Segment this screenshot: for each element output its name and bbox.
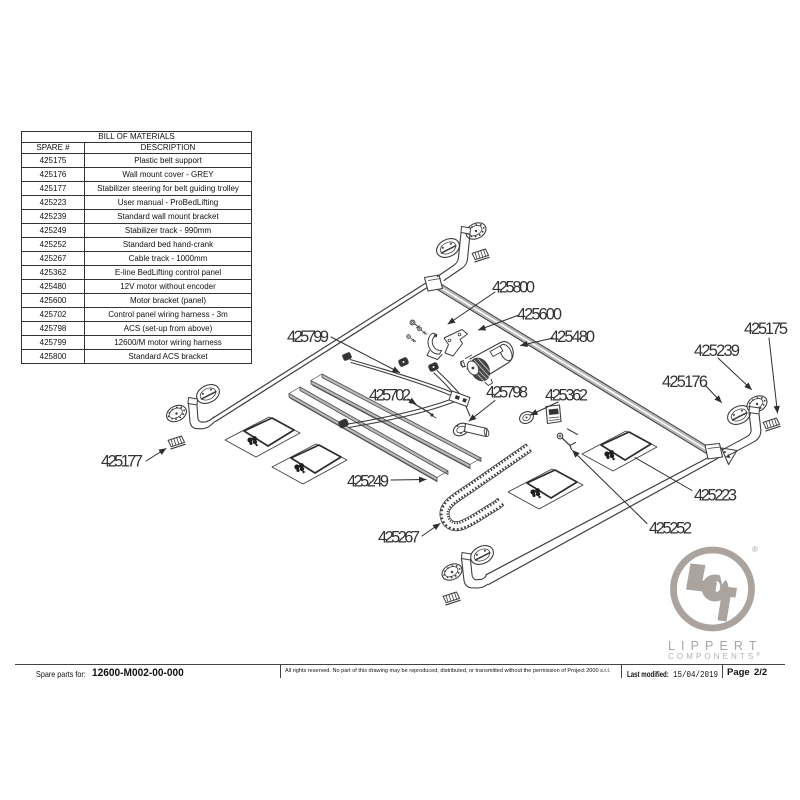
svg-text:425177: 425177	[101, 453, 143, 471]
svg-text:425252: 425252	[649, 520, 692, 538]
svg-text:425800: 425800	[492, 279, 535, 297]
svg-text:425798: 425798	[486, 384, 528, 402]
svg-text:425600: 425600	[517, 306, 562, 324]
svg-text:425267: 425267	[378, 529, 420, 547]
svg-text:425175: 425175	[744, 320, 788, 338]
svg-text:425249: 425249	[347, 473, 389, 491]
svg-text:425702: 425702	[369, 387, 411, 405]
svg-text:425799: 425799	[287, 328, 329, 346]
svg-text:425223: 425223	[694, 487, 737, 505]
svg-text:425176: 425176	[662, 373, 708, 391]
svg-text:®: ®	[752, 545, 758, 554]
svg-text:425362: 425362	[545, 387, 588, 405]
svg-text:425239: 425239	[694, 342, 740, 360]
svg-text:425480: 425480	[550, 328, 595, 346]
